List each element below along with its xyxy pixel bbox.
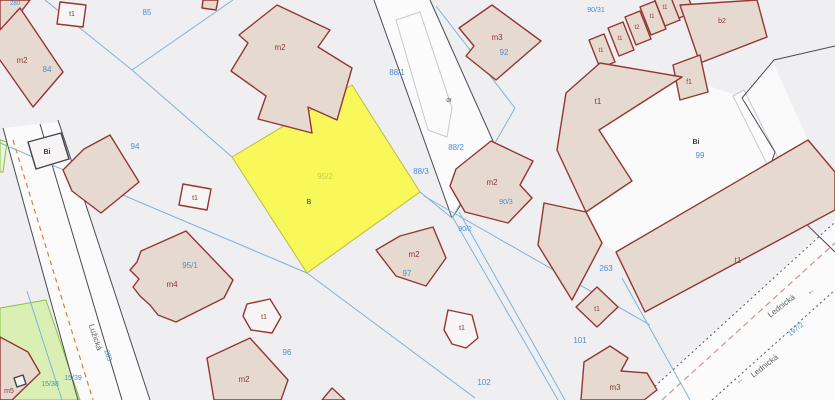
building-m3-92[interactable]: [459, 5, 541, 80]
bldg-m2-84: m2: [16, 56, 28, 65]
parcel-no-15-39[interactable]: 15/39: [64, 375, 82, 382]
parcel-no-102[interactable]: 102: [477, 378, 491, 387]
map-svg[interactable]: 28085t1m284m288/1m39290/31t1t1t2t1t1b2f1…: [0, 0, 835, 400]
parcel-no-94[interactable]: 94: [131, 142, 140, 151]
parcel-no-92[interactable]: 92: [500, 48, 509, 57]
bldg-m5: m5: [4, 388, 14, 395]
landuse-bi-99: Bi: [693, 139, 700, 146]
parcel-no-90-3[interactable]: 90/3: [499, 199, 513, 206]
parcel-no-96[interactable]: 96: [283, 348, 292, 357]
parcel-no-90-31[interactable]: 90/31: [587, 7, 605, 14]
bldg-t1-row-3: t1: [649, 14, 655, 20]
parcel-no-84[interactable]: 84: [43, 65, 52, 74]
parcel-no-88-1[interactable]: 88/1: [389, 68, 405, 77]
landuse-bi-84: Bi: [44, 149, 51, 156]
bldg-t2-row: t2: [634, 25, 640, 31]
cadastral-map[interactable]: 28085t1m284m288/1m39290/31t1t1t2t1t1b2f1…: [0, 0, 835, 400]
bldg-t1-101: t1: [594, 306, 600, 313]
bldg-t1-row-1: t1: [598, 48, 604, 54]
parcel-no-99[interactable]: 99: [696, 151, 705, 160]
building-b2[interactable]: [680, 0, 767, 63]
bldg-t1-102: t1: [459, 325, 465, 332]
bldg-f1: f1: [686, 79, 692, 86]
bldg-m2-97: m2: [408, 250, 420, 259]
shed-symbol[interactable]: [14, 375, 26, 387]
bldg-m2-90: m2: [486, 178, 498, 187]
bldg-t1-row-4: t1: [662, 5, 668, 11]
bldg-m2-88: m2: [274, 43, 286, 52]
parcel-no-280[interactable]: 280: [10, 1, 21, 7]
landuse-dr: dr: [446, 98, 451, 104]
bldg-m2-96: m2: [238, 375, 250, 384]
building-m2-96[interactable]: [207, 338, 288, 400]
building-m2-88[interactable]: [231, 5, 352, 133]
bldg-t1-right: t1: [595, 97, 602, 106]
building-m2-84[interactable]: [0, 8, 63, 107]
landuse-b-95-2: B: [307, 199, 312, 206]
boundary-blue-3: [132, 70, 232, 157]
parcel-no-263[interactable]: 263: [599, 264, 613, 273]
bldg-m3-92: m3: [491, 33, 503, 42]
parcel-no-101[interactable]: 101: [573, 336, 587, 345]
bldg-t1-94: t1: [192, 195, 198, 202]
parcel-no-15-38[interactable]: 15/38: [41, 381, 59, 388]
parcel-no-95-2[interactable]: 95/2: [317, 172, 333, 181]
bldg-t1-96: t1: [261, 314, 267, 321]
parcel-no-88-2[interactable]: 88/2: [448, 143, 464, 152]
building-top-edge-cut[interactable]: [202, 0, 218, 10]
bldg-m4: m4: [166, 280, 178, 289]
parcel-no-88-3[interactable]: 88/3: [413, 167, 429, 176]
building-bottom-cut[interactable]: [322, 388, 345, 400]
parcel-no-85[interactable]: 85: [143, 8, 152, 17]
parcel-no-90-2[interactable]: 90/2: [458, 226, 472, 233]
boundary-blue-1: [45, 0, 132, 70]
bldg-m3-101: m3: [609, 383, 621, 392]
bldg-t1-row-2: t1: [617, 36, 623, 42]
bldg-t1-band: t1: [735, 256, 742, 265]
building-m4[interactable]: [130, 231, 233, 322]
parcel-no-95-1[interactable]: 95/1: [182, 261, 198, 270]
bldg-b2: b2: [718, 18, 726, 25]
bldg-t1-85: t1: [69, 11, 75, 18]
parcel-no-97[interactable]: 97: [403, 269, 412, 278]
